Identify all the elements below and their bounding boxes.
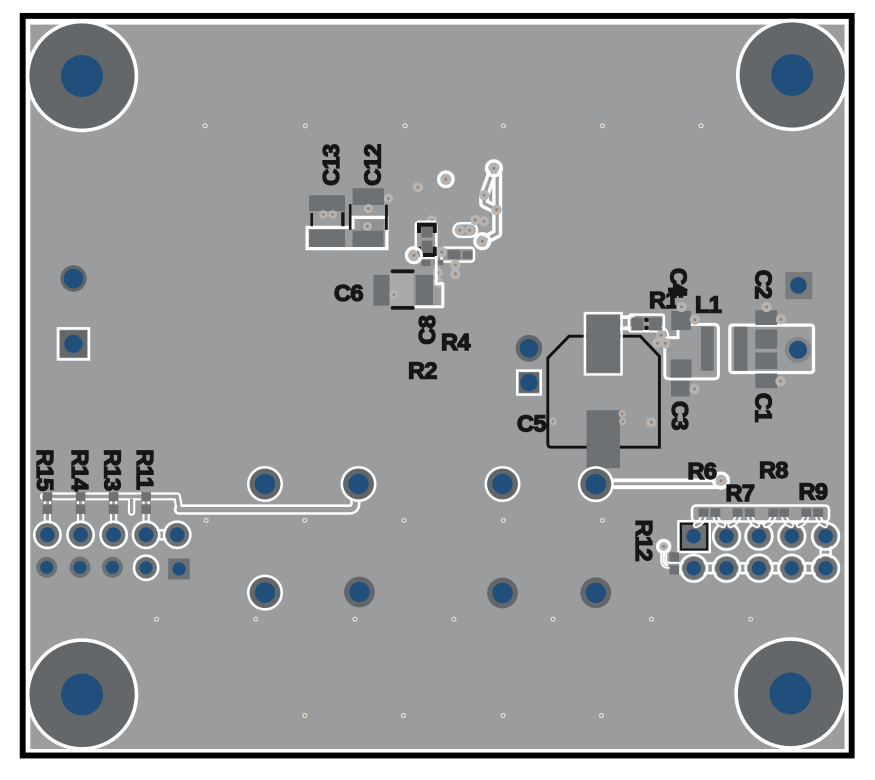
svg-text:R4: R4 <box>441 329 470 355</box>
svg-text:R7: R7 <box>726 480 755 506</box>
svg-text:R11: R11 <box>132 449 158 490</box>
svg-text:R13: R13 <box>99 449 125 491</box>
svg-text:R8: R8 <box>759 457 788 483</box>
svg-text:C8: C8 <box>414 315 440 344</box>
svg-text:C3: C3 <box>667 401 693 430</box>
svg-text:R12: R12 <box>631 520 657 562</box>
svg-text:C12: C12 <box>360 144 386 186</box>
svg-text:R15: R15 <box>32 449 58 491</box>
svg-text:R6: R6 <box>688 458 717 484</box>
svg-text:R14: R14 <box>67 449 93 491</box>
svg-text:R9: R9 <box>799 479 828 505</box>
svg-text:L1: L1 <box>695 292 722 318</box>
svg-text:C2: C2 <box>751 270 777 299</box>
svg-text:C5: C5 <box>517 411 546 437</box>
svg-text:C13: C13 <box>318 144 344 186</box>
svg-text:C6: C6 <box>334 280 363 306</box>
svg-text:C1: C1 <box>751 393 777 422</box>
svg-text:R2: R2 <box>408 358 437 384</box>
